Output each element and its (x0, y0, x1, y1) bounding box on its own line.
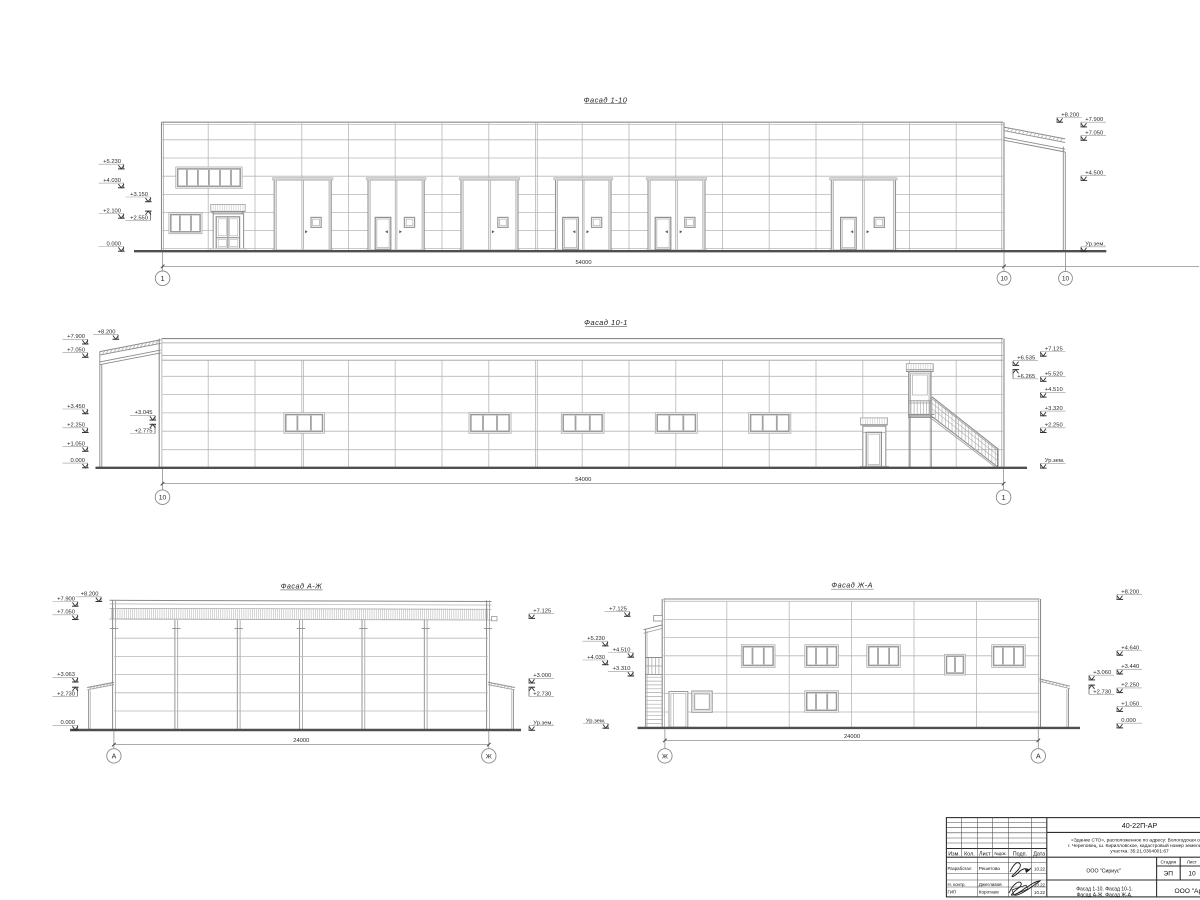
svg-text:0.000: 0.000 (70, 458, 85, 464)
svg-text:+3.450: +3.450 (67, 404, 85, 410)
svg-text:24000: 24000 (293, 738, 309, 744)
svg-text:10: 10 (1000, 276, 1008, 283)
svg-text:1: 1 (161, 274, 165, 283)
svg-text:Ж: Ж (662, 753, 668, 760)
svg-text:+1.050: +1.050 (67, 441, 85, 447)
svg-text:Кол.: Кол. (964, 851, 975, 857)
svg-text:+2.250: +2.250 (1121, 683, 1139, 689)
svg-text:+1.050: +1.050 (1121, 702, 1139, 708)
svg-text:0.000: 0.000 (60, 720, 75, 726)
svg-text:участка: 35:21.0304001:67: участка: 35:21.0304001:67 (1110, 848, 1169, 854)
svg-text:10: 10 (1062, 276, 1070, 283)
svg-text:Фасад 1-10: Фасад 1-10 (584, 95, 628, 104)
svg-text:+3.310: +3.310 (613, 666, 631, 672)
svg-text:+8.200: +8.200 (98, 329, 116, 335)
svg-text:ООО "Сириус": ООО "Сириус" (1086, 869, 1121, 875)
svg-text:Н. контр.: Н. контр. (948, 882, 966, 887)
svg-text:Лист: Лист (1187, 860, 1198, 865)
svg-text:+7.050: +7.050 (1085, 130, 1103, 136)
svg-text:+3.060: +3.060 (1093, 670, 1111, 676)
svg-text:А: А (112, 753, 117, 760)
svg-text:+7.900: +7.900 (57, 596, 75, 602)
svg-text:Изм.: Изм. (948, 851, 960, 857)
svg-text:Фасад А-Ж. Фасад Ж-А.: Фасад А-Ж. Фасад Ж-А. (1077, 892, 1133, 898)
svg-text:ЭП: ЭП (1164, 870, 1174, 877)
svg-text:№док.: №док. (994, 851, 1006, 856)
svg-text:+2.250: +2.250 (67, 423, 85, 429)
svg-text:+7.900: +7.900 (1085, 117, 1103, 123)
svg-text:Подп.: Подп. (1013, 851, 1027, 857)
svg-text:г. Череповец, ш. Кирилловское,: г. Череповец, ш. Кирилловское, кадастров… (1068, 842, 1200, 849)
svg-text:+5.230: +5.230 (103, 159, 121, 165)
svg-text:1: 1 (1002, 493, 1006, 502)
svg-text:Фасад Ж-А: Фасад Ж-А (831, 581, 873, 590)
svg-text:+4.510: +4.510 (1045, 387, 1063, 393)
svg-text:Фасад 10-1: Фасад 10-1 (584, 318, 628, 327)
svg-text:Разработал: Разработал (948, 866, 972, 871)
svg-text:+7.125: +7.125 (609, 606, 627, 612)
svg-text:10: 10 (1188, 870, 1196, 877)
svg-text:+3.000: +3.000 (533, 673, 551, 679)
svg-text:0.000: 0.000 (1121, 718, 1136, 724)
svg-text:+4.030: +4.030 (587, 655, 605, 661)
svg-text:Джеглавов: Джеглавов (979, 882, 1002, 887)
svg-text:+8.200: +8.200 (1121, 590, 1139, 596)
svg-text:+3.045: +3.045 (135, 410, 153, 416)
svg-text:+7.125: +7.125 (1045, 346, 1063, 352)
svg-text:Ур.зем.: Ур.зем. (1045, 458, 1065, 464)
svg-text:+3.063: +3.063 (57, 672, 75, 678)
svg-text:+2.100: +2.100 (103, 208, 121, 214)
svg-text:+4.510: +4.510 (613, 647, 631, 653)
svg-text:+4.640: +4.640 (1121, 645, 1139, 651)
svg-text:+5.520: +5.520 (1045, 371, 1063, 377)
svg-text:40-22П-АР: 40-22П-АР (1122, 821, 1158, 830)
svg-text:24000: 24000 (844, 734, 860, 740)
svg-text:Фасад А-Ж: Фасад А-Ж (281, 582, 323, 591)
svg-text:+8.200: +8.200 (81, 592, 99, 598)
svg-text:+3.320: +3.320 (1045, 406, 1063, 412)
svg-text:Лист: Лист (979, 851, 991, 857)
svg-text:+7.125: +7.125 (533, 609, 551, 615)
svg-text:10.22: 10.22 (1034, 882, 1046, 887)
svg-text:Дата: Дата (1033, 851, 1045, 857)
svg-text:Ж: Ж (486, 753, 492, 760)
svg-text:0.000: 0.000 (106, 241, 121, 247)
svg-text:+3.150: +3.150 (130, 192, 148, 198)
svg-text:Ур.зем.: Ур.зем. (533, 720, 553, 726)
svg-text:Стадия: Стадия (1160, 860, 1176, 865)
svg-text:10: 10 (159, 495, 167, 502)
svg-text:+7.050: +7.050 (67, 347, 85, 353)
svg-text:+7.050: +7.050 (57, 610, 75, 616)
svg-text:+7.900: +7.900 (67, 334, 85, 340)
svg-text:+8.200: +8.200 (1061, 112, 1079, 118)
svg-text:54000: 54000 (575, 477, 591, 483)
svg-text:+4.500: +4.500 (1085, 171, 1103, 177)
svg-text:+4.030: +4.030 (103, 178, 121, 184)
svg-text:Ур.зем.: Ур.зем. (586, 718, 606, 724)
svg-text:+6.535: +6.535 (1017, 356, 1035, 362)
svg-text:+2.250: +2.250 (1045, 423, 1063, 429)
svg-text:Ур.зем.: Ур.зем. (1085, 242, 1105, 248)
svg-text:10.22: 10.22 (1034, 890, 1046, 895)
svg-text:Коротаев: Коротаев (979, 890, 999, 895)
svg-text:+3.440: +3.440 (1121, 664, 1139, 670)
svg-text:10.22: 10.22 (1034, 866, 1046, 871)
svg-text:Решетова: Решетова (979, 866, 1000, 871)
svg-text:«Здание СТО», расположенное по: «Здание СТО», расположенное по адресу: В… (1071, 838, 1200, 844)
svg-text:ГИП: ГИП (948, 890, 957, 895)
svg-text:54000: 54000 (575, 260, 591, 266)
svg-text:ООО "Архитек: ООО "Архитек (1175, 888, 1200, 895)
svg-text:+5.230: +5.230 (587, 636, 605, 642)
svg-text:А: А (1036, 753, 1041, 760)
